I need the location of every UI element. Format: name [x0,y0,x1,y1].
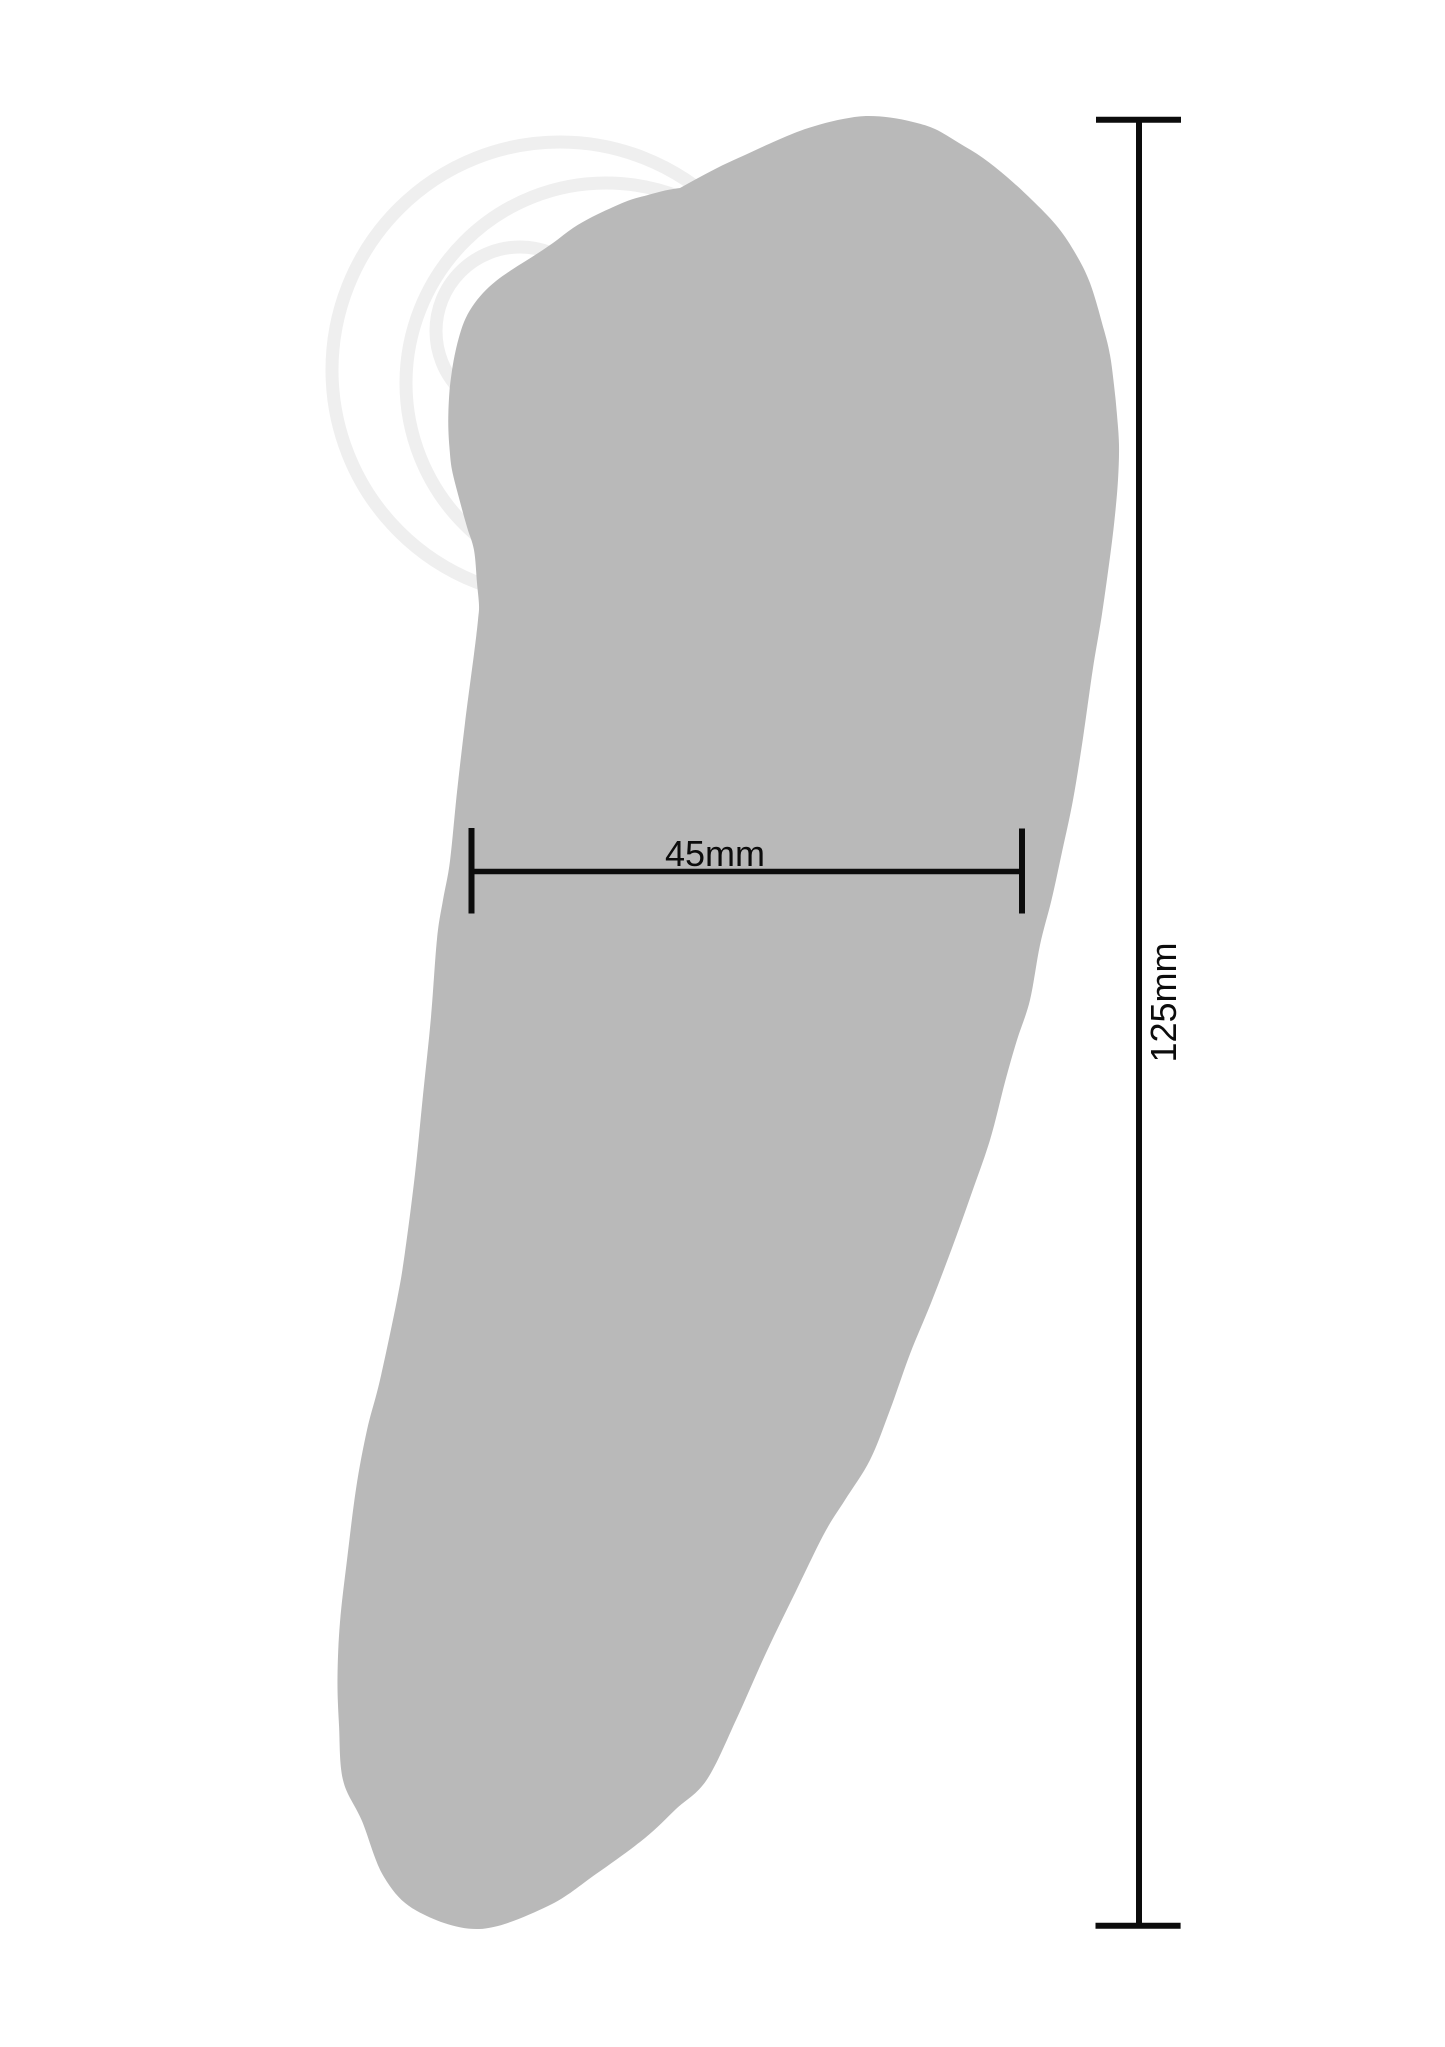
svg-text:45mm: 45mm [665,833,765,874]
svg-text:125mm: 125mm [1143,942,1184,1062]
